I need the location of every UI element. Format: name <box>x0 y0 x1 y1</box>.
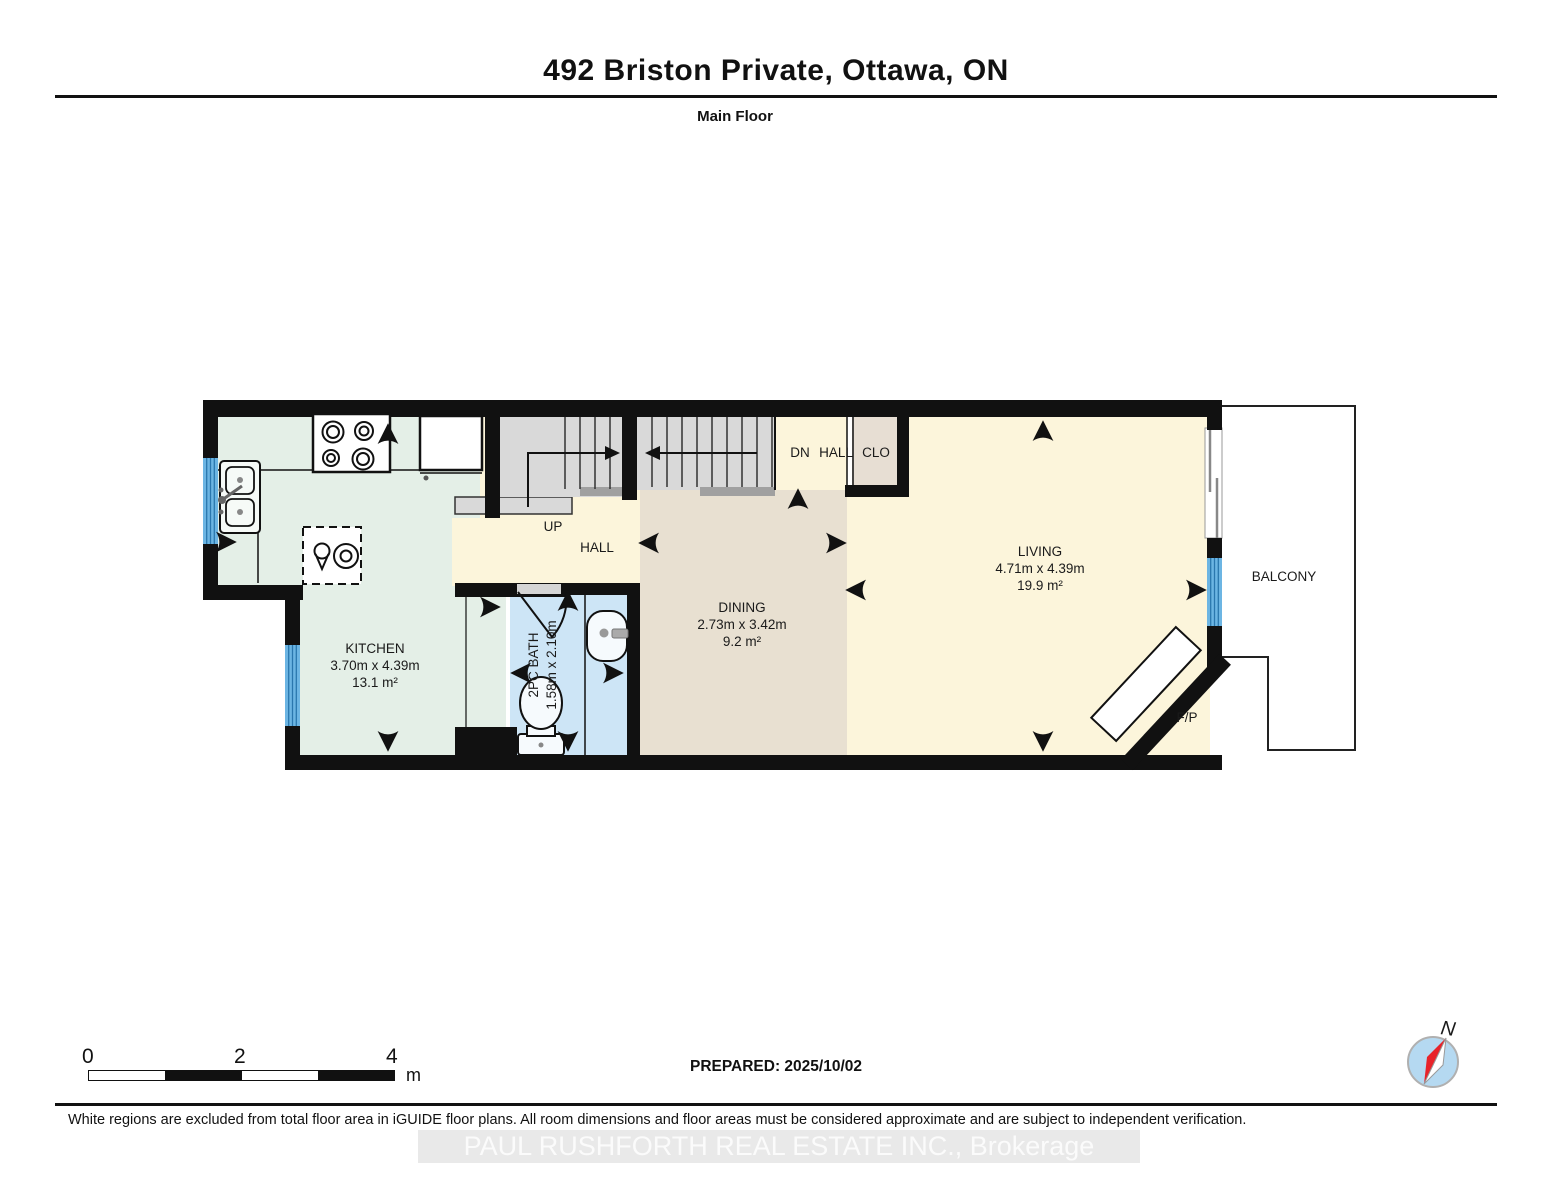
living-area: 19.9 m² <box>1017 578 1063 593</box>
window-kitchen-lower <box>285 641 300 729</box>
window-kitchen-upper <box>203 455 218 547</box>
brokerage-watermark: PAUL RUSHFORTH REAL ESTATE INC., Brokera… <box>418 1130 1140 1163</box>
down-hall-label: HALL <box>819 445 853 460</box>
bath-dimensions: 1.58m x 2.10m <box>544 620 559 709</box>
balcony-label: BALCONY <box>1252 569 1317 584</box>
patio-door <box>1205 428 1222 538</box>
footer-divider <box>55 1103 1497 1106</box>
kitchen-sink-icon <box>218 461 260 533</box>
room-hall-nook <box>452 518 484 586</box>
dining-area: 9.2 m² <box>723 634 762 649</box>
dining-dimensions: 2.73m x 3.42m <box>697 617 786 632</box>
living-label: LIVING <box>1018 544 1062 559</box>
floorplan-drawing: KITCHEN 3.70m x 4.39m 13.1 m² DINING 2.7… <box>0 0 1552 1200</box>
stairs-down <box>637 417 775 496</box>
kitchen-strip <box>458 590 506 730</box>
window-living <box>1207 556 1222 628</box>
prepared-date: PREPARED: 2025/10/02 <box>0 1058 1552 1076</box>
kitchen-label: KITCHEN <box>345 641 404 656</box>
compass-north-label: N <box>1439 1017 1457 1041</box>
closet-label: CLO <box>862 445 890 460</box>
fridge-icon <box>420 416 482 481</box>
kitchen-area: 13.1 m² <box>352 675 398 690</box>
floorplan-page: { "header": { "title": "492 Briston Priv… <box>0 0 1552 1200</box>
dining-label: DINING <box>718 600 765 615</box>
disclaimer-text: White regions are excluded from total fl… <box>68 1112 1488 1128</box>
fireplace-label: F/P <box>1176 710 1197 725</box>
bath-sink-icon <box>587 611 628 661</box>
kitchen-dimensions: 3.70m x 4.39m <box>330 658 419 673</box>
bath-label: 2PC BATH <box>526 632 541 697</box>
hall-label: HALL <box>580 540 614 555</box>
stairs-down-label: DN <box>790 445 810 460</box>
living-dimensions: 4.71m x 4.39m <box>995 561 1084 576</box>
stairs-up-label: UP <box>544 519 563 534</box>
compass: N <box>1408 1017 1458 1087</box>
dishwasher-icon <box>303 527 361 584</box>
